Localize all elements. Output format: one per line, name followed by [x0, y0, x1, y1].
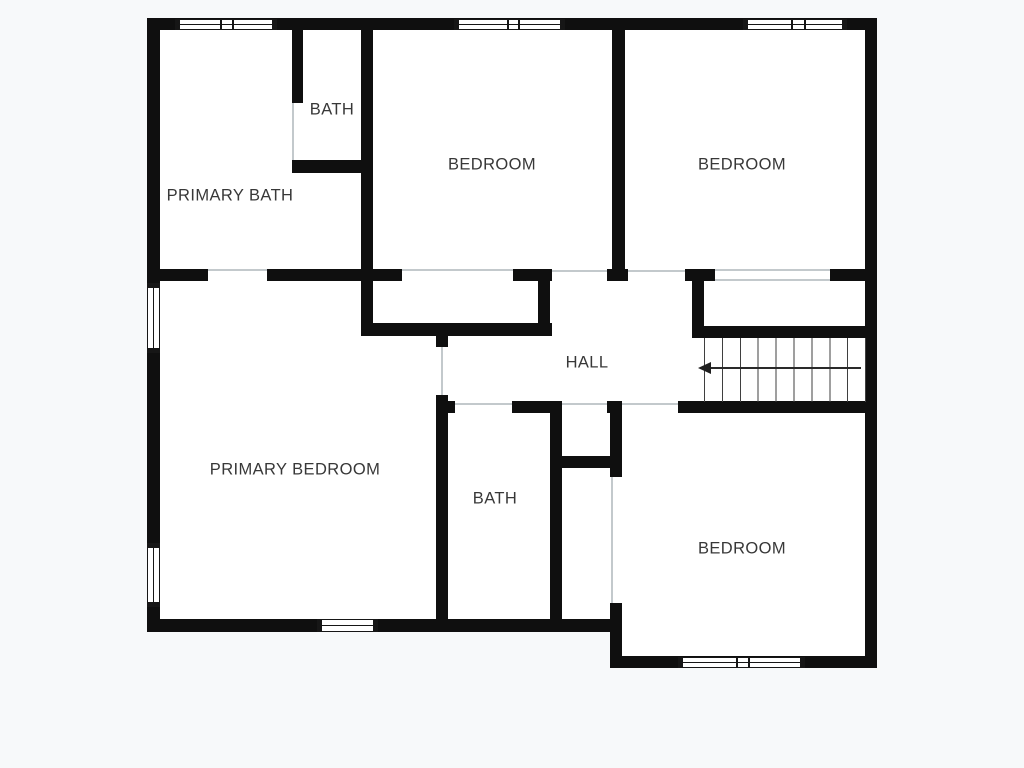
- wall-stairwell-north: [692, 326, 865, 338]
- door-opening-upper-bath: [292, 103, 294, 160]
- wall-mid-band-d: [607, 269, 628, 281]
- stairwell-opening-top-line: [715, 269, 830, 271]
- room-label-bedroom-bottom-right: BEDROOM: [698, 540, 786, 559]
- stairs-direction-line: [706, 367, 861, 369]
- window-mullion: [507, 19, 520, 30]
- door-opening-bedroom-bottom-right: [622, 403, 678, 405]
- room-label-bath-upper: BATH: [310, 101, 354, 120]
- wall-mid-band-f: [830, 269, 865, 281]
- wall-primarybath-bedroom-divider: [361, 30, 373, 335]
- door-opening-bedroom-top-middle: [552, 270, 607, 272]
- window-top-right: [743, 19, 847, 30]
- room-label-bedroom-top-right: BEDROOM: [698, 156, 786, 175]
- window-glass-line: [153, 544, 154, 606]
- window-glass-line: [153, 284, 154, 352]
- window-mullion: [736, 657, 750, 668]
- window-glass-line: [318, 625, 377, 626]
- floor-area-bottom-right-bedroom: [622, 413, 865, 656]
- room-label-bath-lower: BATH: [473, 490, 517, 509]
- door-opening-hall-closet: [562, 403, 607, 405]
- stairs-direction-arrow: [698, 362, 711, 374]
- window-left-upper: [147, 283, 160, 353]
- door-opening-bedroom-top-right: [628, 270, 685, 272]
- wall-bedroom-west-lower: [610, 603, 622, 668]
- wall-exterior-right: [865, 18, 877, 668]
- room-label-primary-bath: PRIMARY BATH: [167, 187, 294, 206]
- wall-hall-south-d: [678, 401, 865, 413]
- window-top-left: [175, 19, 277, 30]
- window-left-lower: [147, 543, 160, 607]
- wall-mid-band-a: [160, 269, 208, 281]
- wall-upper-bath-west: [292, 30, 303, 103]
- door-opening-primary-bath: [208, 269, 267, 271]
- closet-opening-bedroom-bottom-right: [611, 477, 613, 603]
- wall-stairwell-west: [692, 269, 704, 331]
- door-opening-lower-bath: [455, 403, 512, 405]
- wall-exterior-bottom-main: [147, 619, 618, 632]
- window-mullion: [220, 19, 234, 30]
- wall-primarybedroom-hall-upper: [436, 335, 448, 347]
- room-label-bedroom-top-middle: BEDROOM: [448, 156, 536, 175]
- wall-lower-bath-east: [550, 412, 562, 632]
- window-top-middle: [454, 19, 565, 30]
- room-label-hall: HALL: [566, 354, 609, 373]
- wall-bedrooms-divider: [612, 30, 625, 281]
- wall-upper-bath-south: [292, 160, 367, 173]
- window-bottom-bedroom: [678, 657, 805, 668]
- wall-mid-band-b: [267, 269, 402, 281]
- stairwell-opening-bottom-line: [715, 279, 830, 281]
- door-opening-primary-bedroom: [441, 347, 443, 395]
- floor-plan: BATH PRIMARY BATH BEDROOM BEDROOM HALL P…: [0, 0, 1024, 768]
- wall-closet-divider: [562, 456, 622, 468]
- staircase-treads: [704, 338, 866, 402]
- closet-opening-bedroom-top: [402, 269, 513, 271]
- room-label-primary-bedroom: PRIMARY BEDROOM: [210, 461, 380, 480]
- window-mullion: [791, 19, 806, 30]
- window-bottom-main: [317, 619, 378, 632]
- wall-closet-south: [361, 323, 552, 336]
- wall-lower-bath-west: [436, 412, 448, 632]
